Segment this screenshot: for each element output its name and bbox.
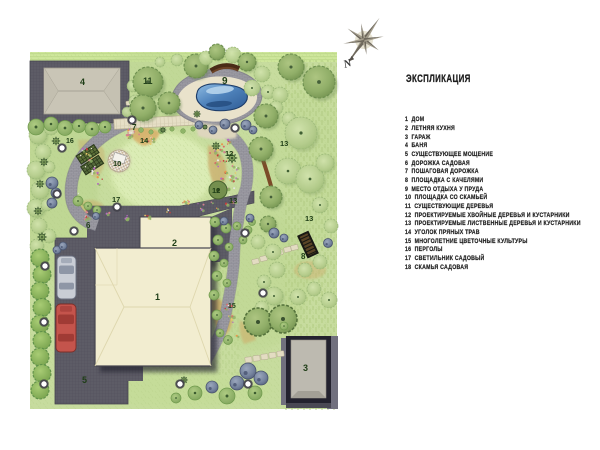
svg-text:12: 12 [212,186,220,195]
svg-text:7: 7 [132,123,137,132]
svg-text:15: 15 [228,303,236,310]
svg-text:3: 3 [303,363,308,373]
svg-text:4: 4 [80,77,85,87]
svg-text:9: 9 [222,76,228,87]
svg-text:13: 13 [305,214,313,223]
svg-text:12: 12 [225,149,233,158]
svg-text:6: 6 [86,221,91,230]
svg-text:17: 17 [112,195,120,204]
svg-text:13: 13 [229,196,237,205]
svg-text:5: 5 [82,375,87,385]
svg-text:14: 14 [140,136,149,145]
svg-text:1: 1 [155,292,160,302]
svg-text:8: 8 [301,252,306,261]
svg-text:11: 11 [143,76,153,86]
svg-text:16: 16 [66,138,74,145]
svg-text:10: 10 [113,159,121,168]
svg-text:13: 13 [280,139,288,148]
svg-text:2: 2 [172,238,177,248]
